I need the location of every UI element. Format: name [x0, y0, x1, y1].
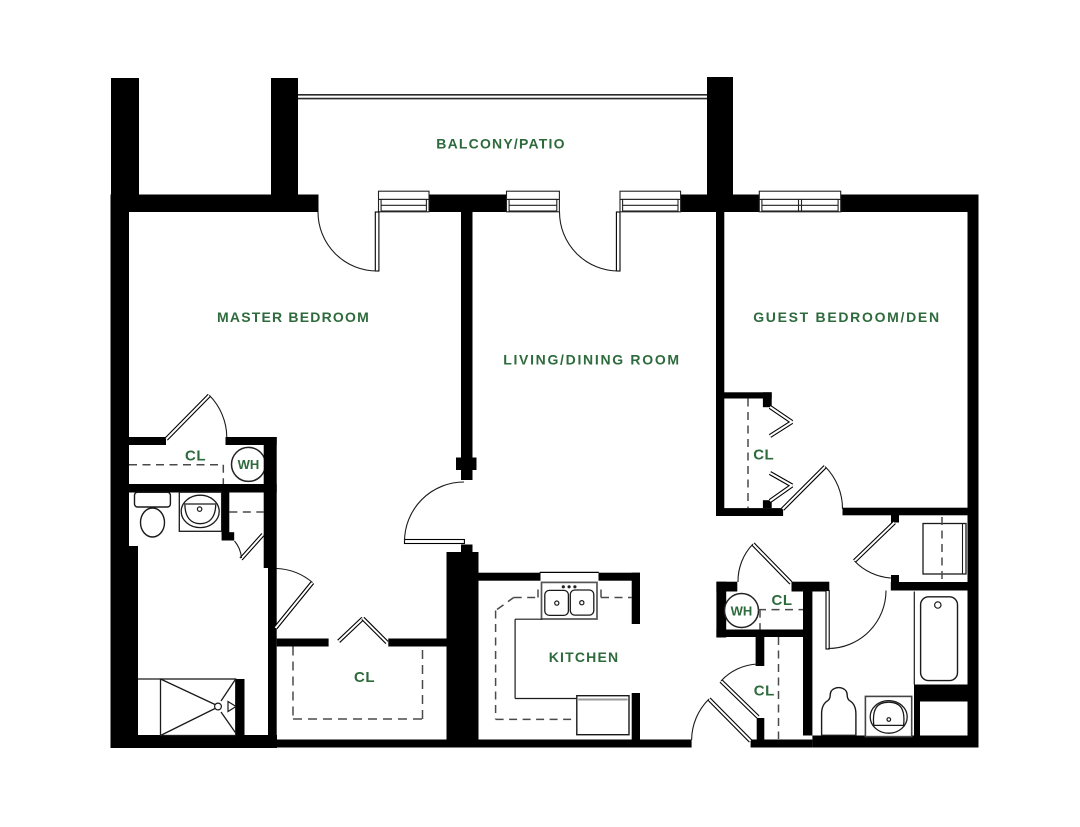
- svg-text:CL: CL: [754, 683, 775, 700]
- svg-text:WH: WH: [238, 457, 260, 472]
- svg-text:WH: WH: [731, 604, 753, 619]
- svg-text:KITCHEN: KITCHEN: [549, 649, 620, 665]
- svg-text:GUEST BEDROOM/DEN: GUEST BEDROOM/DEN: [753, 309, 941, 325]
- svg-text:CL: CL: [772, 592, 793, 609]
- svg-text:BALCONY/PATIO: BALCONY/PATIO: [436, 136, 565, 152]
- svg-text:CL: CL: [753, 447, 774, 464]
- svg-text:CL: CL: [354, 669, 375, 686]
- svg-text:LIVING/DINING ROOM: LIVING/DINING ROOM: [503, 352, 681, 368]
- svg-text:MASTER BEDROOM: MASTER BEDROOM: [217, 309, 370, 325]
- svg-text:CL: CL: [185, 448, 206, 465]
